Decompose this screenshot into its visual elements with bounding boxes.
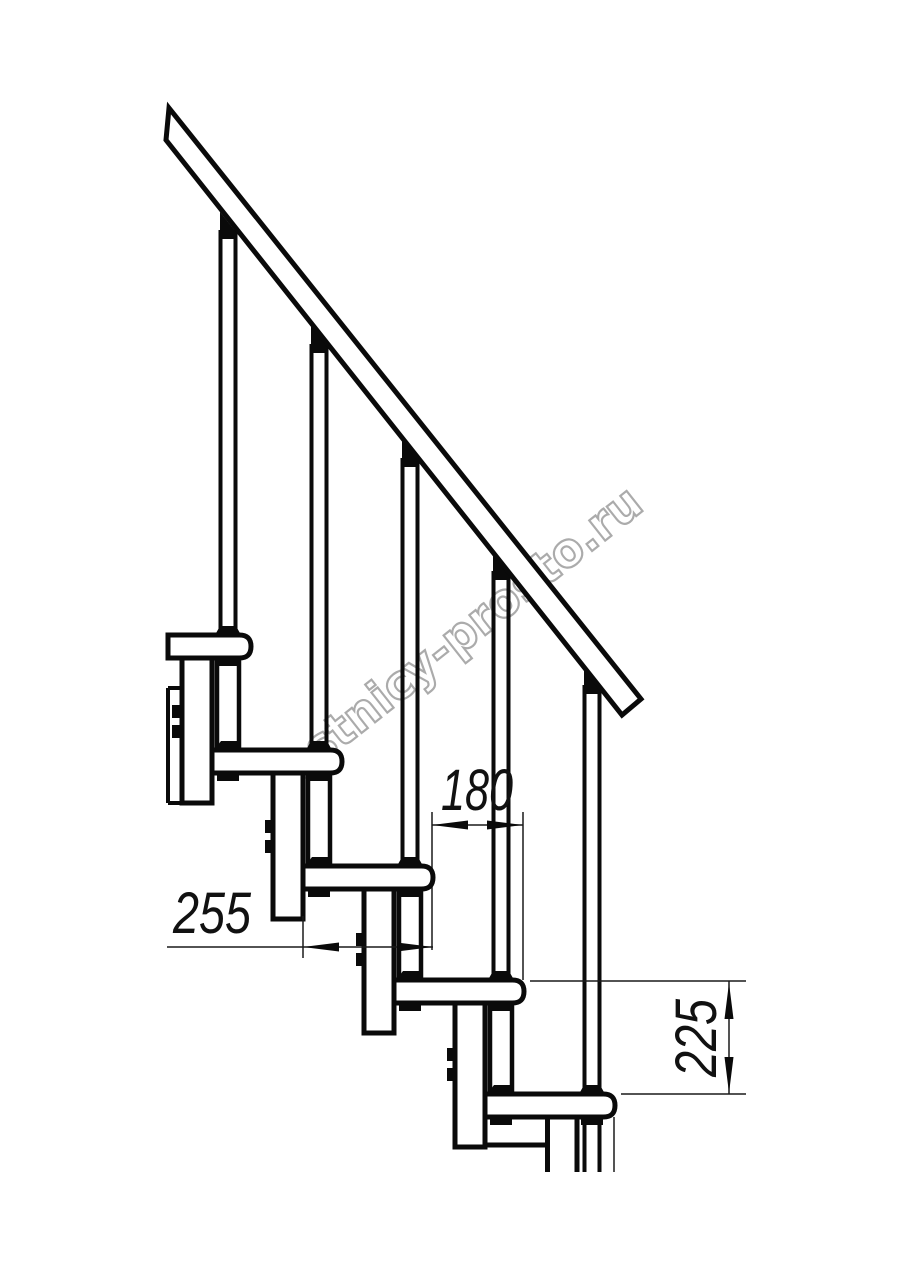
baluster-1	[215, 212, 241, 666]
drawing-page: lestnicy-prosto.ru	[0, 0, 914, 1280]
adjust-bolt	[356, 953, 365, 966]
support-rod-5	[585, 1117, 615, 1172]
adjust-bolt	[356, 933, 365, 946]
adjust-bolt	[265, 840, 274, 853]
column-5	[548, 1117, 578, 1172]
baluster-5	[579, 667, 605, 1125]
column-2	[265, 773, 303, 919]
tread-4	[394, 980, 524, 1003]
dimension-225: 225	[530, 981, 746, 1094]
tread-1	[168, 635, 251, 658]
tread-5	[485, 1094, 615, 1117]
dimension-label-255: 255	[172, 881, 251, 946]
column-4	[447, 1003, 545, 1147]
tread-2	[212, 750, 342, 773]
adjust-bolt	[265, 820, 274, 833]
support-rod-1	[217, 658, 239, 750]
adjust-bolt	[172, 705, 182, 718]
adjust-bolt	[447, 1068, 456, 1081]
arrowhead	[303, 943, 339, 952]
staircase-diagram: lestnicy-prosto.ru	[0, 0, 914, 1280]
dimension-label-225: 225	[664, 998, 729, 1077]
dimension-label-180: 180	[441, 758, 513, 823]
tread-3	[303, 866, 433, 889]
adjust-bolt	[172, 725, 182, 738]
column-1	[168, 658, 212, 803]
support-rod-4	[490, 1003, 512, 1094]
support-rod-3	[399, 889, 421, 980]
adjust-bolt	[447, 1048, 456, 1061]
column-3	[356, 889, 394, 1033]
arrowhead	[397, 943, 433, 952]
